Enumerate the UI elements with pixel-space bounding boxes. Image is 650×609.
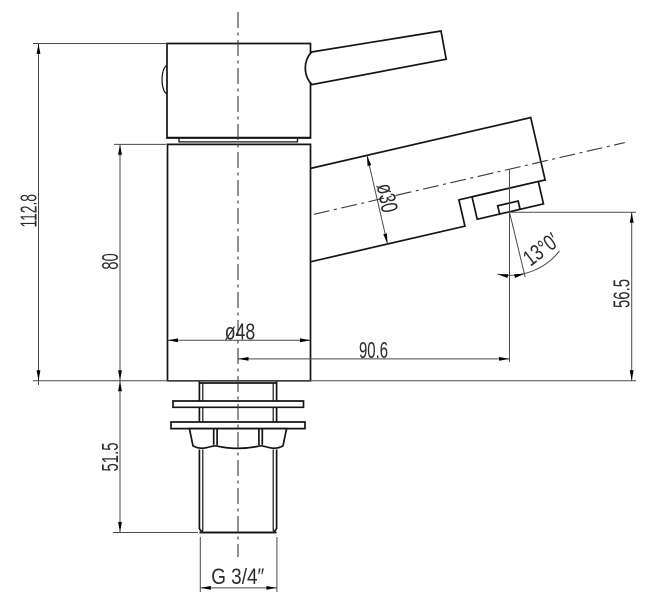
svg-text:56.5: 56.5 [609, 279, 635, 308]
svg-text:80: 80 [97, 253, 123, 270]
svg-text:90.6: 90.6 [359, 337, 388, 363]
svg-text:ø48: ø48 [225, 318, 256, 344]
svg-text:G 3/4″: G 3/4″ [211, 564, 264, 589]
svg-text:51.5: 51.5 [97, 443, 123, 472]
svg-text:112.8: 112.8 [16, 194, 42, 228]
